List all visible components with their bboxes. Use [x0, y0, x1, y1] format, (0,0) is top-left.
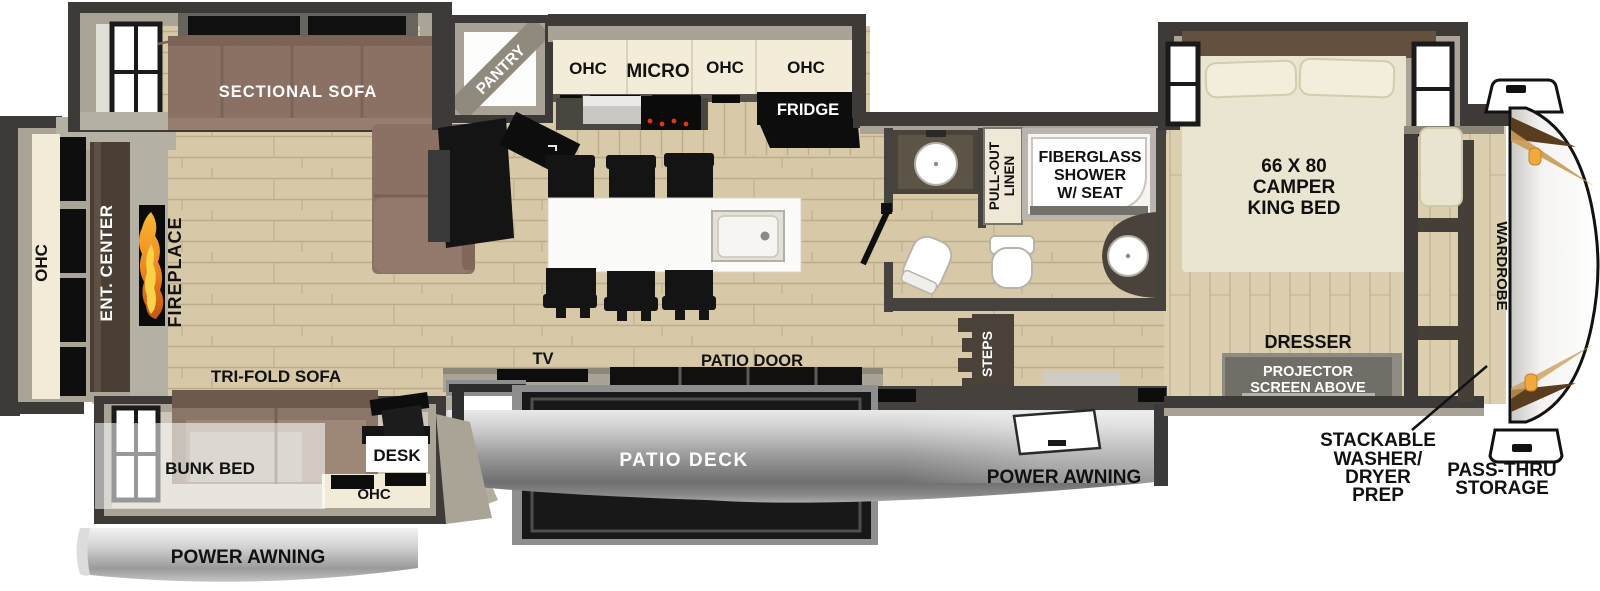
svg-text:66 X 80: 66 X 80 [1261, 156, 1327, 177]
svg-text:MICRO: MICRO [626, 61, 689, 82]
svg-text:STACKABLE: STACKABLE [1320, 430, 1436, 451]
svg-text:OHC: OHC [569, 59, 607, 78]
svg-text:PULL-OUT: PULL-OUT [987, 141, 1002, 210]
svg-text:TV: TV [532, 350, 553, 368]
svg-text:WARDROBE: WARDROBE [1493, 221, 1510, 310]
svg-text:SECTIONAL SOFA: SECTIONAL SOFA [219, 83, 378, 101]
svg-text:PREP: PREP [1352, 485, 1404, 506]
svg-text:W/ SEAT: W/ SEAT [1057, 185, 1123, 202]
svg-text:FIBERGLASS: FIBERGLASS [1038, 149, 1141, 166]
svg-text:DESK: DESK [373, 446, 421, 465]
svg-text:FRIDGE: FRIDGE [777, 101, 839, 119]
svg-text:LINEN: LINEN [1002, 156, 1017, 197]
svg-text:OHC: OHC [32, 244, 51, 282]
svg-text:FIREPLACE: FIREPLACE [165, 216, 185, 327]
svg-text:POWER AWNING: POWER AWNING [171, 547, 325, 568]
svg-text:KING BED: KING BED [1248, 198, 1341, 219]
svg-text:PATIO DECK: PATIO DECK [619, 450, 748, 471]
svg-text:OHC: OHC [357, 486, 391, 503]
svg-text:OHC: OHC [706, 58, 744, 77]
svg-text:STORAGE: STORAGE [1455, 478, 1549, 499]
svg-text:SHOWER: SHOWER [1054, 167, 1126, 184]
svg-text:TRI-FOLD SOFA: TRI-FOLD SOFA [211, 367, 341, 386]
svg-text:POWER AWNING: POWER AWNING [987, 467, 1141, 488]
svg-text:BUNK BED: BUNK BED [165, 459, 255, 478]
svg-text:DRESSER: DRESSER [1264, 332, 1351, 352]
svg-text:SCREEN ABOVE: SCREEN ABOVE [1250, 380, 1366, 396]
svg-text:PROJECTOR: PROJECTOR [1263, 364, 1354, 380]
svg-text:ENT. CENTER: ENT. CENTER [97, 205, 116, 322]
svg-text:PATIO DOOR: PATIO DOOR [701, 352, 803, 370]
svg-text:STEPS: STEPS [979, 331, 995, 377]
svg-text:CAMPER: CAMPER [1253, 177, 1336, 198]
svg-text:OHC: OHC [787, 58, 825, 77]
